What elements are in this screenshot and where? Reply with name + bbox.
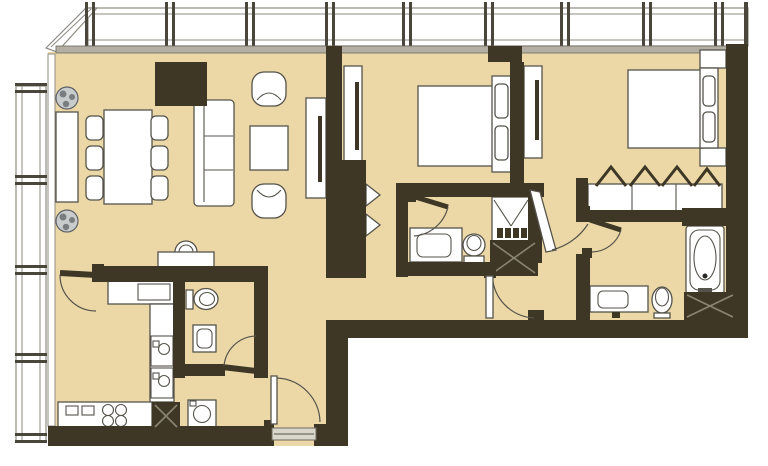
bathroom1-toilet — [463, 234, 485, 263]
cooktop-counter — [58, 402, 152, 428]
basin-guest — [193, 325, 216, 352]
floor-plan-drawing — [0, 0, 768, 466]
door-leaf — [486, 276, 493, 318]
plant-icon — [56, 87, 78, 109]
mcloset-post — [576, 178, 588, 208]
door-leaf — [271, 376, 277, 424]
master-bath-cabinet — [684, 292, 736, 320]
wall-console — [56, 112, 78, 202]
armchair-top — [252, 72, 286, 106]
pillow — [495, 84, 508, 118]
pillow — [495, 126, 508, 160]
wc-wall-right — [254, 266, 268, 378]
pillow — [703, 112, 715, 142]
pillow — [703, 76, 715, 106]
bed1-head-wall — [488, 46, 522, 62]
coffee-table — [250, 126, 288, 170]
living-bedroom1-wall — [326, 46, 342, 162]
tub-wall-top — [682, 208, 728, 226]
bed-1 — [418, 86, 494, 166]
inner-wall-face — [48, 54, 55, 426]
dining-table — [104, 110, 152, 204]
master-toilet — [652, 287, 672, 318]
tv-panel-bedroom2 — [524, 66, 542, 158]
outer-wall-bottom-right — [330, 320, 748, 338]
tv-icon — [318, 116, 322, 182]
nightstand — [700, 50, 726, 68]
bathroom1-wall-top — [404, 183, 544, 197]
structural-column — [155, 62, 207, 106]
tv-icon — [355, 82, 359, 150]
shower — [492, 197, 530, 241]
door-stop-block — [528, 310, 544, 320]
closet-surround-wall — [326, 160, 366, 278]
wc-wall-left — [173, 282, 185, 378]
bathtub — [686, 226, 724, 294]
wc-kitchen-wall-top — [96, 266, 268, 282]
nightstand — [700, 148, 726, 166]
sofa — [194, 100, 234, 206]
window-sill — [56, 46, 746, 53]
kitchen-upper-counter — [108, 280, 174, 304]
mbath-wall-top — [588, 210, 688, 222]
bathroom1-vanity — [410, 228, 462, 262]
kitchen-appliance-block — [152, 402, 180, 430]
kitchen-sink-units — [150, 304, 174, 402]
tv-console — [306, 98, 326, 198]
washing-machine — [188, 400, 216, 428]
toilet-guest — [186, 289, 218, 310]
armchair-bottom — [252, 184, 286, 218]
tv-panel-bedroom1 — [344, 66, 362, 166]
outer-wall-notch — [326, 320, 348, 446]
master-closet-shelves — [588, 184, 722, 212]
window-wall-top — [46, 2, 748, 53]
mbath-wall-left-bottom — [576, 254, 590, 320]
bedroom-divider-wall — [510, 62, 524, 197]
window-band — [16, 86, 46, 442]
tv-icon — [535, 80, 539, 140]
wc-wall-bottom — [173, 364, 225, 376]
window-wall-left — [15, 54, 55, 443]
bathroom1-cabinet — [490, 240, 538, 276]
plant-icon — [56, 210, 78, 232]
bed-2 — [628, 70, 702, 148]
floor-plan-canvas — [0, 0, 768, 466]
